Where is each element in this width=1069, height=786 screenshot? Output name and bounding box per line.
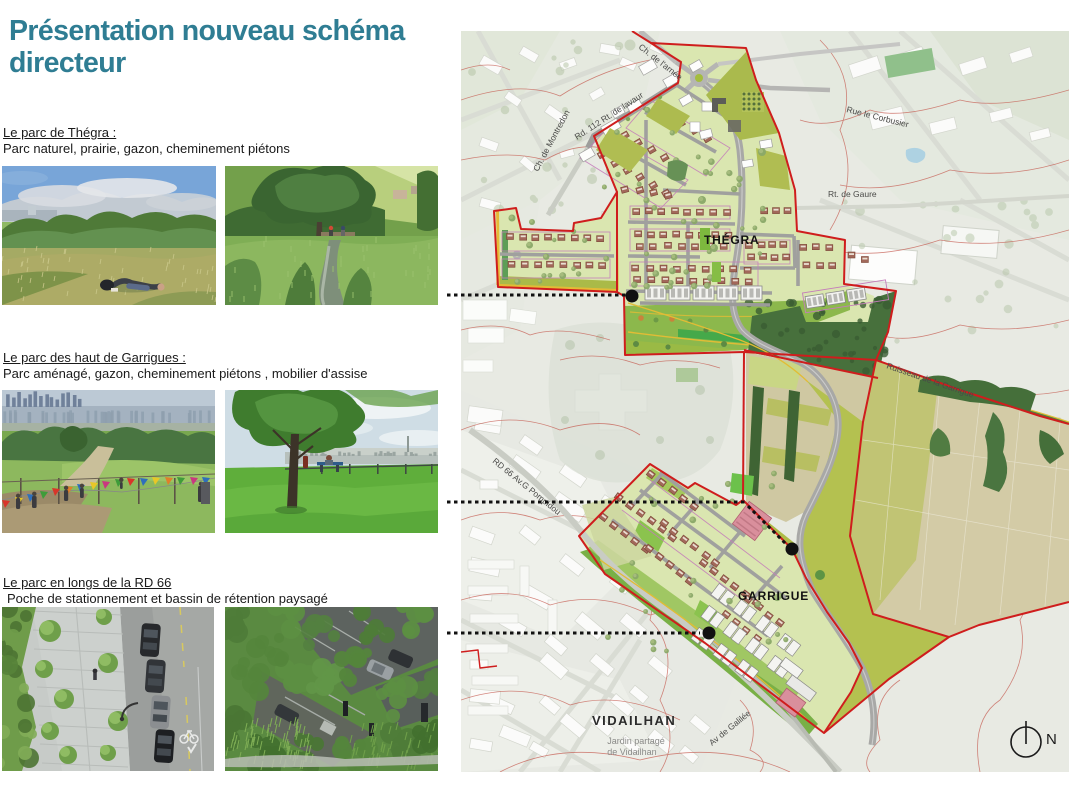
svg-text:THÉGRA: THÉGRA xyxy=(704,232,759,247)
svg-text:GARRIGUE: GARRIGUE xyxy=(738,589,809,603)
svg-text:de Vidailhan: de Vidailhan xyxy=(607,747,656,757)
svg-text:Rt. de Gaure: Rt. de Gaure xyxy=(828,189,877,199)
svg-text:N: N xyxy=(1046,731,1057,748)
svg-text:VIDAILHAN: VIDAILHAN xyxy=(592,713,676,728)
svg-text:Jardin partagé: Jardin partagé xyxy=(607,736,665,746)
